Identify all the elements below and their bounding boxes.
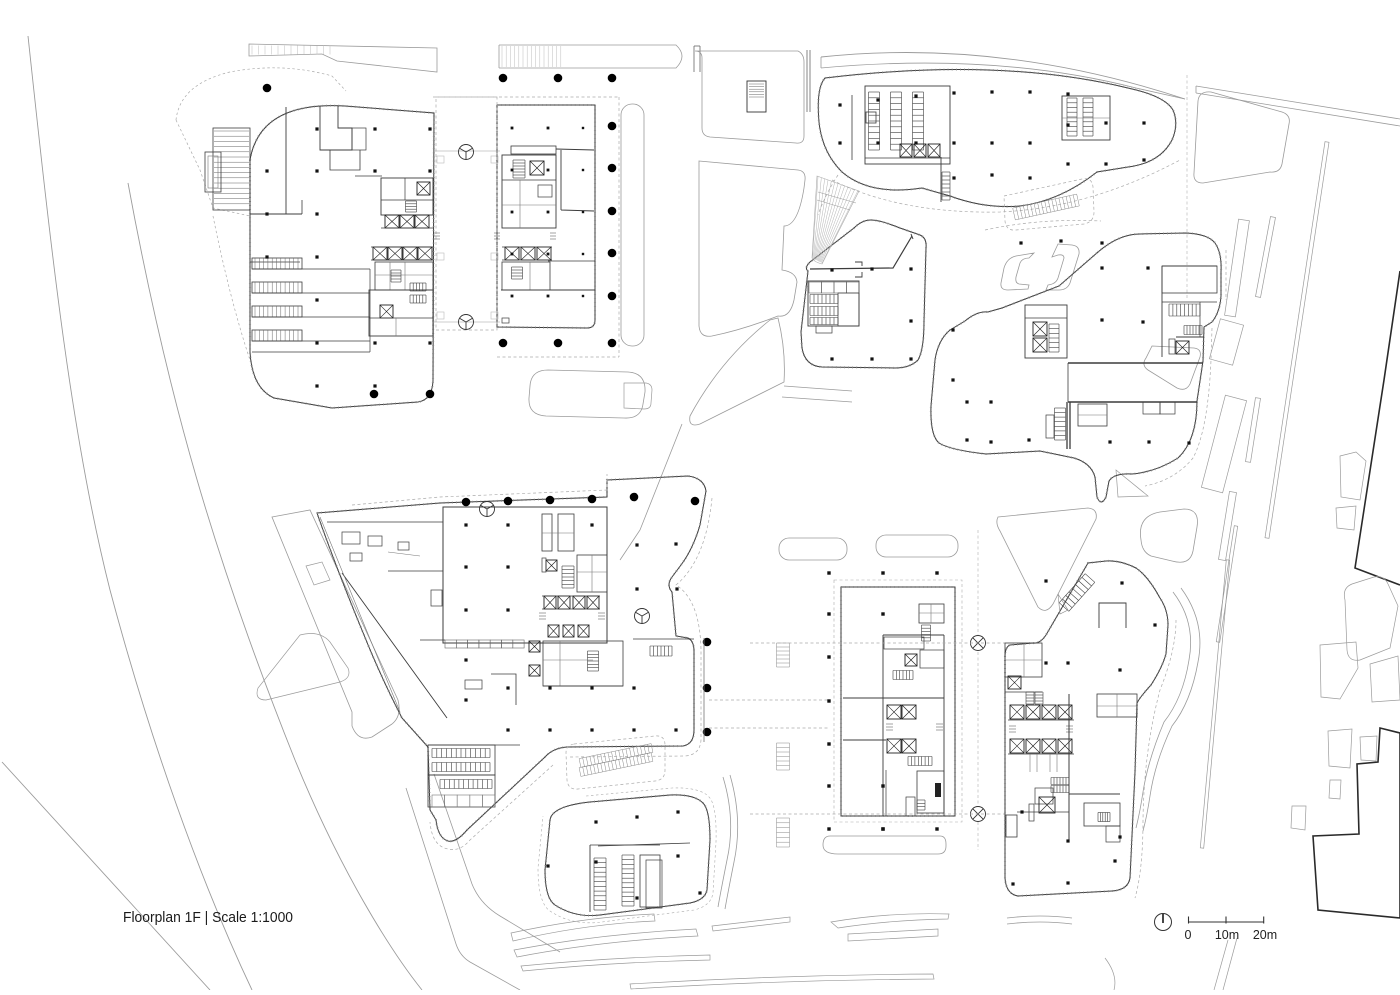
svg-text:0: 0 [1185,928,1192,942]
svg-text:20m: 20m [1253,928,1277,942]
svg-text:10m: 10m [1215,928,1239,942]
svg-text:Floorplan 1F | Scale 1:1000: Floorplan 1F | Scale 1:1000 [123,910,293,926]
